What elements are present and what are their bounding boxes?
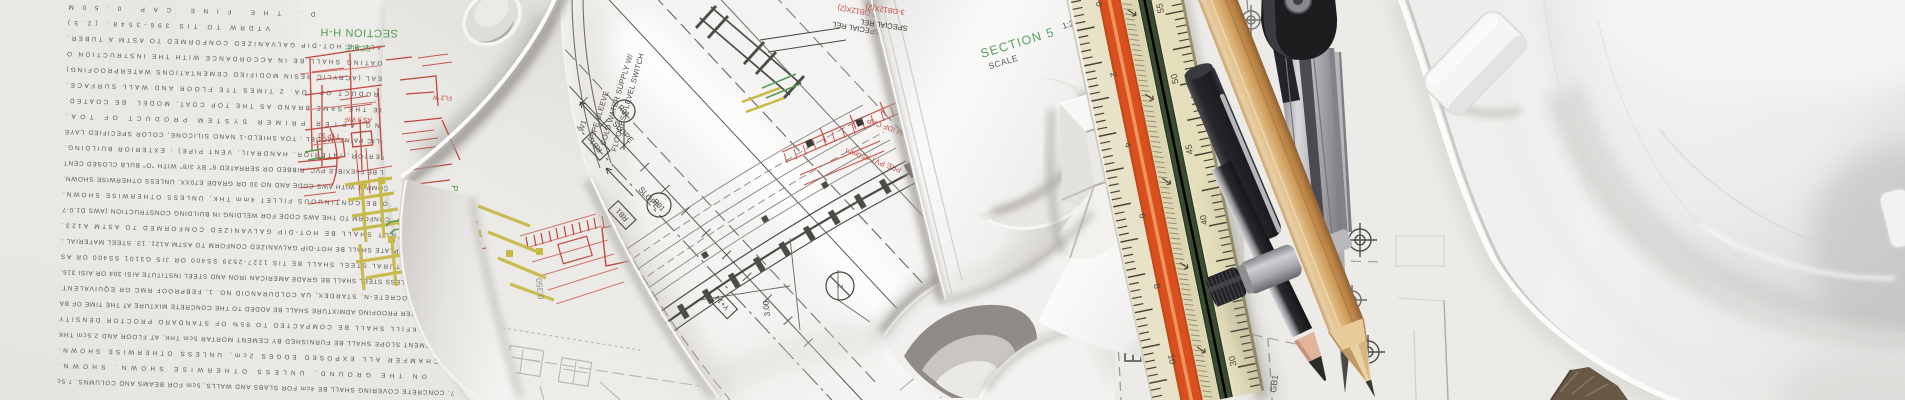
svg-text:30: 30 <box>1227 355 1239 367</box>
svg-text:55: 55 <box>1154 2 1166 14</box>
svg-text:50: 50 <box>1169 73 1181 85</box>
svg-text:3.00: 3.00 <box>761 300 772 317</box>
svg-text:10: 10 <box>1166 353 1178 365</box>
svg-text:45: 45 <box>1183 144 1195 156</box>
svg-text:40: 40 <box>1198 214 1210 226</box>
